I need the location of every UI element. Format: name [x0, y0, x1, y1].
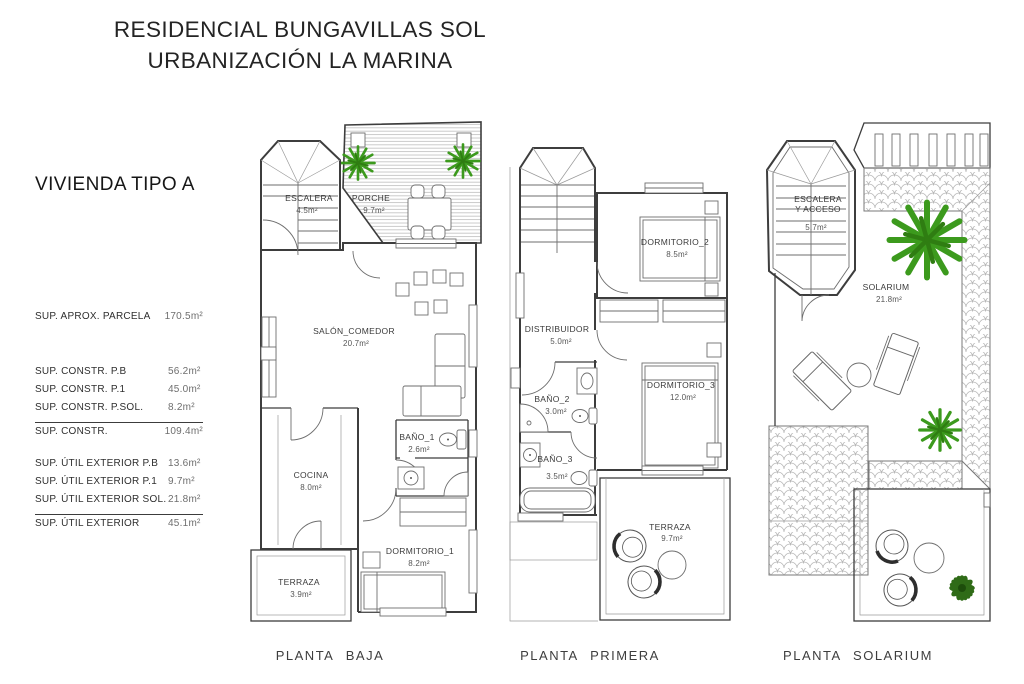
nightstand-icon — [707, 443, 721, 457]
round-chair-icon — [878, 568, 922, 612]
living-room — [261, 239, 477, 593]
room-label: Y ACCESO — [795, 204, 841, 214]
nightstand-icon — [707, 343, 721, 357]
door-arc — [571, 432, 597, 458]
room-label: DORMITORIO_3 — [647, 380, 715, 390]
row-label: SUP. CONSTR. P.1 — [35, 384, 168, 395]
dwelling-type-heading: VIVIENDA TIPO A — [35, 174, 195, 196]
room-area: 3.5m² — [546, 472, 568, 481]
room-area: 8.0m² — [300, 483, 322, 492]
row-label: SUP. ÚTIL EXTERIOR P.B — [35, 458, 168, 469]
floor-plan-planta-solarium: ESCALERA Y ACCESO 5.7m² SOLARIUM 21.8m² — [758, 118, 1004, 623]
bathtub-icon — [520, 488, 595, 512]
door-arc — [802, 295, 829, 321]
nightstand-icon — [705, 201, 718, 214]
room-area: 8.5m² — [666, 250, 688, 259]
table-row: SUP. ÚTIL EXTERIOR P.B 13.6m² — [35, 458, 203, 476]
room-label: TERRAZA — [278, 577, 320, 587]
row-value: 45.0m² — [168, 384, 201, 395]
palm-plant-icon — [890, 203, 965, 278]
row-value: 21.8m² — [168, 494, 201, 505]
toilet-icon — [572, 408, 597, 424]
room-label: BAÑO_1 — [399, 432, 434, 442]
window — [518, 513, 563, 521]
room-area: 9.7m² — [363, 206, 385, 215]
bed-icon — [640, 217, 720, 281]
room-area: 20.7m² — [343, 339, 369, 348]
room-area: 5.0m² — [550, 337, 572, 346]
parcela-value: 170.5m² — [165, 311, 203, 322]
round-table-icon — [914, 543, 944, 573]
room-area: 3.0m² — [545, 407, 567, 416]
row-value: 45.1m² — [168, 518, 201, 529]
shower-icon — [444, 472, 468, 496]
window — [984, 493, 990, 507]
sun-lounger-icon — [871, 332, 921, 396]
row-value: 109.4m² — [165, 426, 203, 437]
plan-caption-planta-baja: PLANTA BAJA — [250, 648, 410, 663]
plan-caption-planta-solarium: PLANTA SOLARIUM — [778, 648, 938, 663]
table-row-total: SUP. CONSTR. 109.4m² — [35, 426, 203, 444]
roof-tiles — [769, 426, 868, 575]
window — [469, 305, 477, 367]
round-table-icon — [847, 363, 871, 387]
door-arc — [291, 408, 323, 440]
dark-plant-icon — [948, 574, 975, 601]
row-value: 13.6m² — [168, 458, 201, 469]
staircase — [520, 148, 595, 253]
window — [469, 530, 477, 593]
porch-area — [342, 122, 482, 243]
door-arc — [522, 362, 555, 395]
window — [469, 430, 477, 457]
floor-plan-planta-primera: DORMITORIO_2 8.5m² DISTRIBUIDOR 5.0m² BA… — [505, 138, 735, 633]
row-value: 8.2m² — [168, 402, 195, 413]
door-arc — [597, 330, 627, 360]
room-label: COCINA — [294, 470, 329, 480]
toilet-icon — [571, 470, 597, 486]
room-label: BAÑO_2 — [534, 394, 569, 404]
room-area: 4.5m² — [296, 206, 318, 215]
round-chair-icon — [876, 530, 908, 562]
row-label: SUP. CONSTR. P.SOL. — [35, 402, 168, 413]
floor-plan-sheet: RESIDENCIAL BUNGAVILLAS SOL URBANIZACIÓN… — [0, 0, 1024, 684]
floor-plan-planta-baja: ESCALERA 4.5m² PORCHE 9.7m² SALÓN_COMEDO… — [250, 120, 490, 635]
plan-caption-planta-primera: PLANTA PRIMERA — [510, 648, 670, 663]
room-label: PORCHE — [352, 193, 390, 203]
door-arc — [293, 521, 321, 549]
room-label: SOLARIUM — [863, 282, 910, 292]
parcela-label: SUP. APROX. PARCELA — [35, 311, 165, 322]
nightstand-icon — [705, 283, 718, 296]
sink-icon — [398, 467, 424, 489]
row-value: 56.2m² — [168, 366, 201, 377]
sink-icon — [577, 368, 597, 394]
roof-tiles — [869, 461, 962, 489]
bed-icon — [361, 572, 445, 612]
room-label: ESCALERA — [794, 194, 842, 204]
room-label: TERRAZA — [649, 522, 691, 532]
round-chair-icon — [623, 561, 666, 604]
table-row: SUP. ÚTIL EXTERIOR P.1 9.7m² — [35, 476, 203, 494]
table-row: SUP. ÚTIL EXTERIOR SOL. 21.8m² — [35, 494, 203, 515]
room-area: 9.7m² — [661, 534, 683, 543]
porch-post — [351, 133, 365, 147]
room-area: 5.7m² — [805, 223, 827, 232]
sheet-title: RESIDENCIAL BUNGAVILLAS SOL URBANIZACIÓN… — [60, 14, 540, 76]
room-label: SALÓN_COMEDOR — [313, 326, 395, 336]
sofa-icon — [403, 334, 465, 416]
table-row: SUP. CONSTR. P.SOL. 8.2m² — [35, 402, 203, 423]
row-label: SUP. CONSTR. P.B — [35, 366, 168, 377]
room-label: DISTRIBUIDOR — [525, 324, 590, 334]
toilet-icon — [440, 430, 467, 449]
round-table-icon — [658, 551, 686, 579]
door-arc — [597, 262, 628, 293]
row-value: 9.7m² — [168, 476, 195, 487]
row-label: SUP. ÚTIL EXTERIOR SOL. — [35, 494, 168, 505]
palm-plant-icon — [920, 410, 961, 451]
table-row: SUP. CONSTR. P.B 56.2m² — [35, 366, 203, 384]
room-area: 3.9m² — [290, 590, 312, 599]
row-label: SUP. ÚTIL EXTERIOR P.1 — [35, 476, 168, 487]
parcela-row: SUP. APROX. PARCELA 170.5m² — [35, 311, 203, 329]
sheet-title-line2: URBANIZACIÓN LA MARINA — [60, 45, 540, 76]
row-label: SUP. ÚTIL EXTERIOR — [35, 518, 168, 529]
room-label: BAÑO_3 — [537, 454, 572, 464]
window — [516, 273, 524, 318]
nightstand-icon — [363, 552, 380, 568]
window — [380, 608, 446, 616]
exterior-surface-table: SUP. ÚTIL EXTERIOR P.B 13.6m² SUP. ÚTIL … — [35, 458, 203, 536]
pergola — [854, 123, 990, 168]
round-chair-icon — [609, 525, 650, 566]
row-label: SUP. CONSTR. — [35, 426, 165, 437]
room-label: ESCALERA — [285, 193, 333, 203]
lower-roof-outline — [510, 522, 597, 560]
table-row-total: SUP. ÚTIL EXTERIOR 45.1m² — [35, 518, 203, 536]
room-area: 21.8m² — [876, 295, 902, 304]
table-row: SUP. CONSTR. P.1 45.0m² — [35, 384, 203, 402]
ac-unit-icon — [511, 368, 520, 388]
door-arc — [363, 488, 396, 521]
dining-chairs-icon — [396, 270, 463, 315]
room-label: DORMITORIO_2 — [641, 237, 709, 247]
terrace — [600, 478, 730, 620]
bedroom-3 — [642, 343, 721, 475]
sun-lounger-icon — [791, 350, 854, 413]
terrace — [854, 489, 990, 621]
room-area: 8.2m² — [408, 559, 430, 568]
room-area: 12.0m² — [670, 393, 696, 402]
solarium — [791, 203, 965, 451]
room-label: DORMITORIO_1 — [386, 546, 454, 556]
room-area: 2.6m² — [408, 445, 430, 454]
shower-icon — [520, 404, 548, 432]
constructed-surface-table: SUP. CONSTR. P.B 56.2m² SUP. CONSTR. P.1… — [35, 366, 203, 444]
sheet-title-line1: RESIDENCIAL BUNGAVILLAS SOL — [60, 14, 540, 45]
